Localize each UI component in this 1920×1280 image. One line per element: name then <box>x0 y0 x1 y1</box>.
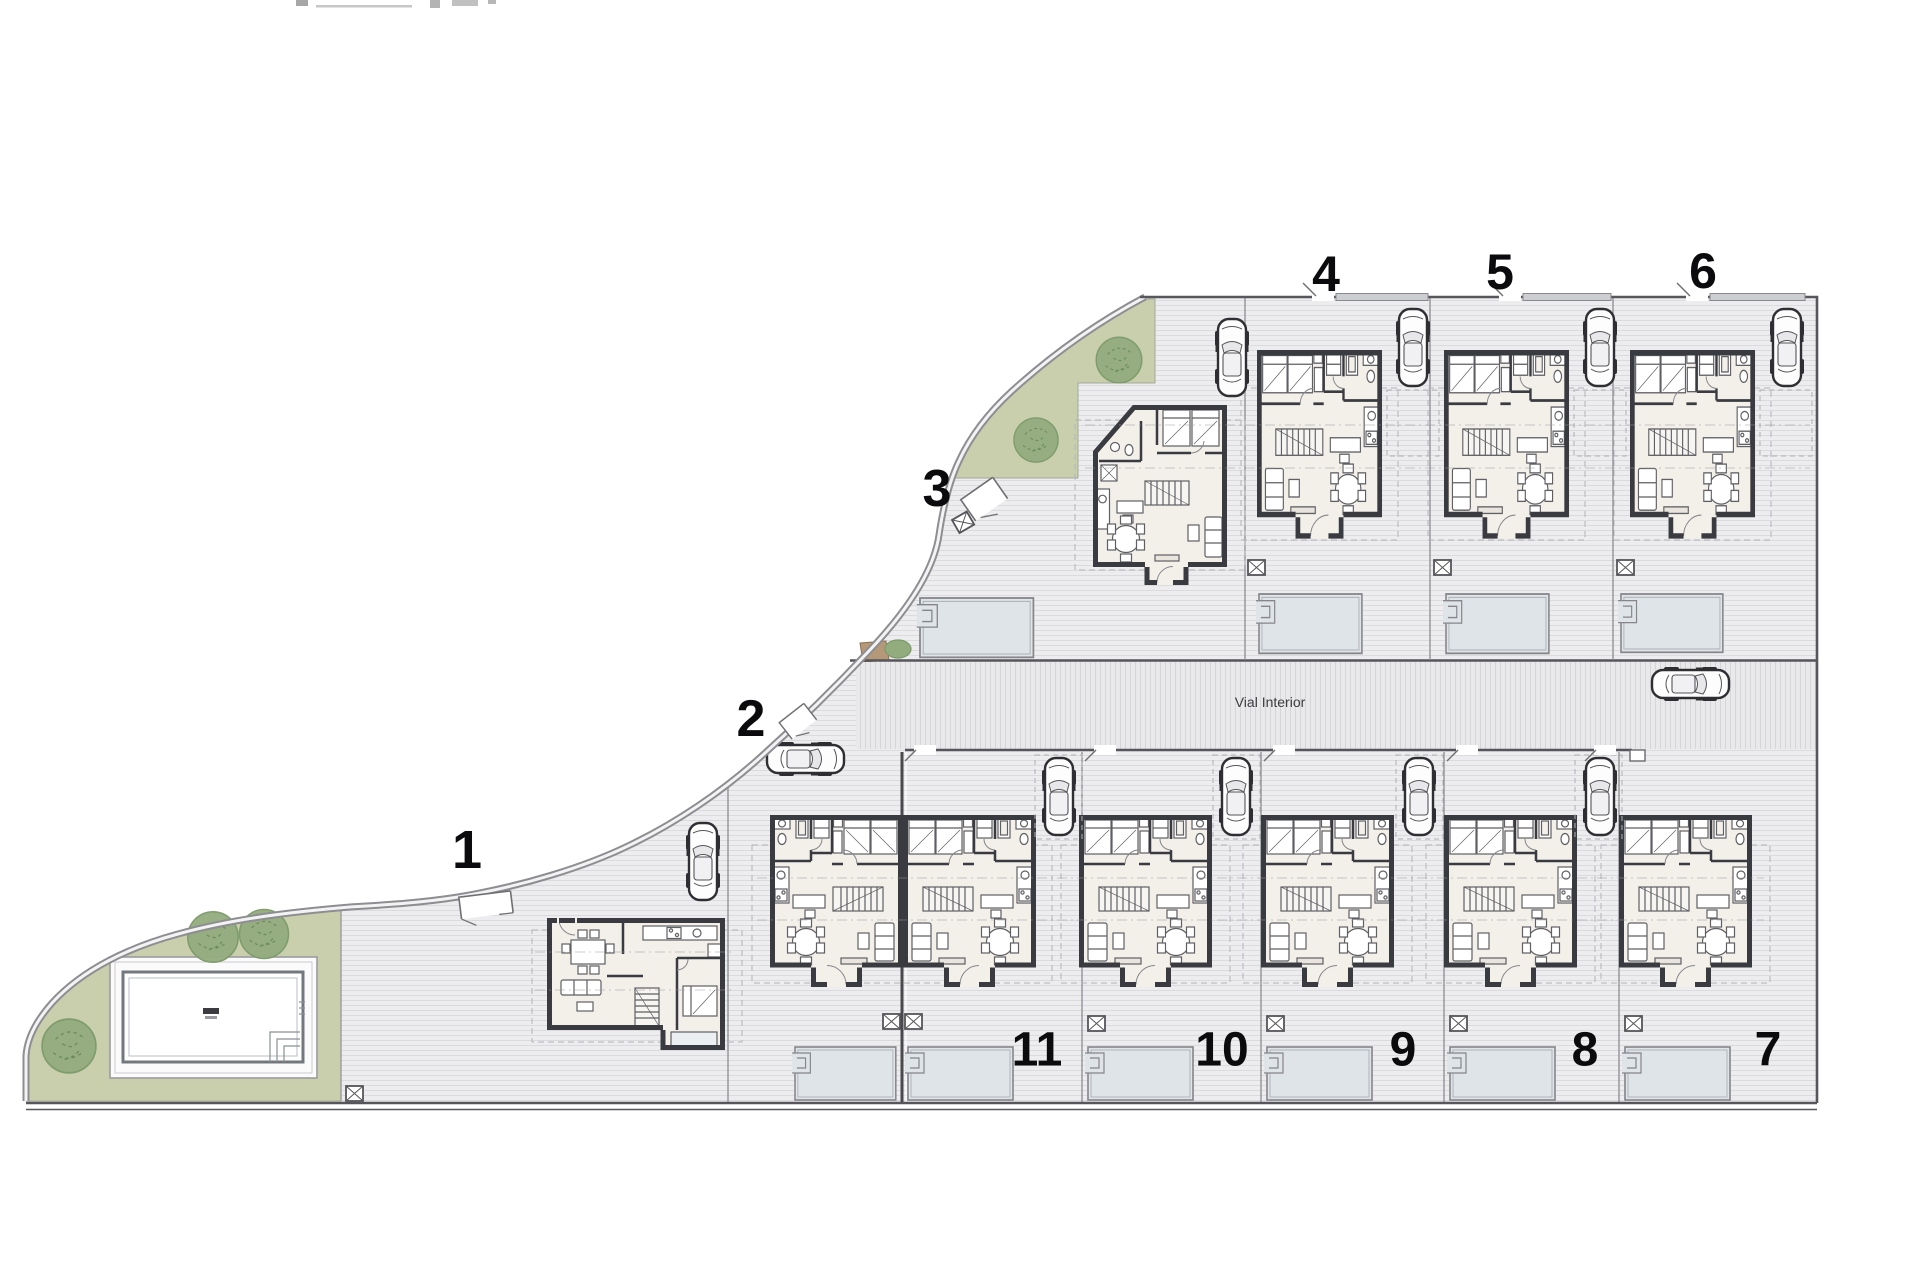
utility-box <box>1248 560 1265 575</box>
house-unit-8 <box>1444 815 1577 987</box>
car <box>1396 309 1430 386</box>
utility-box <box>346 1086 363 1101</box>
unit-label-6: 6 <box>1689 243 1717 299</box>
utility-box <box>1450 1016 1467 1031</box>
car <box>1583 309 1617 386</box>
road-end-post <box>1630 750 1645 761</box>
house-unit-3 <box>1093 405 1227 585</box>
unit-label-10: 10 <box>1195 1024 1248 1077</box>
utility-box <box>905 1014 922 1029</box>
house-unit-6 <box>1630 350 1755 539</box>
utility-box <box>1267 1016 1284 1031</box>
unit-label-9: 9 <box>1390 1024 1417 1077</box>
patio-unit-2 <box>792 1047 896 1100</box>
car <box>1042 758 1076 835</box>
pool-center-mark-2 <box>205 1016 217 1019</box>
shrub <box>885 640 911 658</box>
patio-unit-10 <box>1085 1047 1193 1100</box>
utility-box <box>1434 560 1451 575</box>
car <box>1215 319 1249 396</box>
patio-unit-11 <box>905 1047 1013 1100</box>
gate-driveway <box>1336 294 1805 301</box>
utility-box <box>883 1014 900 1029</box>
house-unit-11 <box>903 815 1036 987</box>
patio-unit-5 <box>1443 594 1549 653</box>
patio-unit-7 <box>1622 1047 1730 1100</box>
site-plan-image: Vial Interior <box>0 0 1920 1280</box>
car <box>1652 667 1729 701</box>
house-unit-5 <box>1444 350 1569 539</box>
utility-box <box>1617 560 1634 575</box>
unit-label-2: 2 <box>737 690 766 748</box>
utility-box <box>1625 1016 1642 1031</box>
pool-center-mark <box>203 1008 219 1014</box>
road-label: Vial Interior <box>1235 694 1306 710</box>
patio-unit-9 <box>1264 1047 1372 1100</box>
unit-label-3: 3 <box>923 460 952 518</box>
utility-box <box>1088 1016 1105 1031</box>
tree <box>1096 337 1142 383</box>
house-unit-9 <box>1261 815 1394 987</box>
patio-unit-3 <box>917 598 1034 657</box>
car <box>1583 758 1617 835</box>
patio-unit-8 <box>1447 1047 1555 1100</box>
pool-area <box>110 957 317 1078</box>
unit-label-8: 8 <box>1572 1024 1599 1077</box>
patio-unit-6 <box>1618 594 1723 652</box>
site-plan-page: Vial Interior <box>0 0 1920 1280</box>
car <box>1770 309 1804 386</box>
tree <box>42 1019 96 1073</box>
unit-label-4: 4 <box>1312 246 1340 302</box>
car <box>1219 758 1253 835</box>
house-unit-7 <box>1619 815 1752 987</box>
house-unit-10 <box>1079 815 1212 987</box>
tree <box>1014 418 1058 462</box>
patio-unit-4 <box>1256 594 1362 653</box>
house-unit-4 <box>1257 350 1382 539</box>
unit-label-5: 5 <box>1486 244 1514 300</box>
unit-label-11: 11 <box>1012 1024 1063 1077</box>
car <box>686 823 720 900</box>
unit-label-7: 7 <box>1755 1024 1782 1077</box>
car <box>767 742 844 776</box>
car <box>1402 758 1436 835</box>
unit-label-1: 1 <box>452 820 482 880</box>
house-unit-2 <box>770 815 903 987</box>
